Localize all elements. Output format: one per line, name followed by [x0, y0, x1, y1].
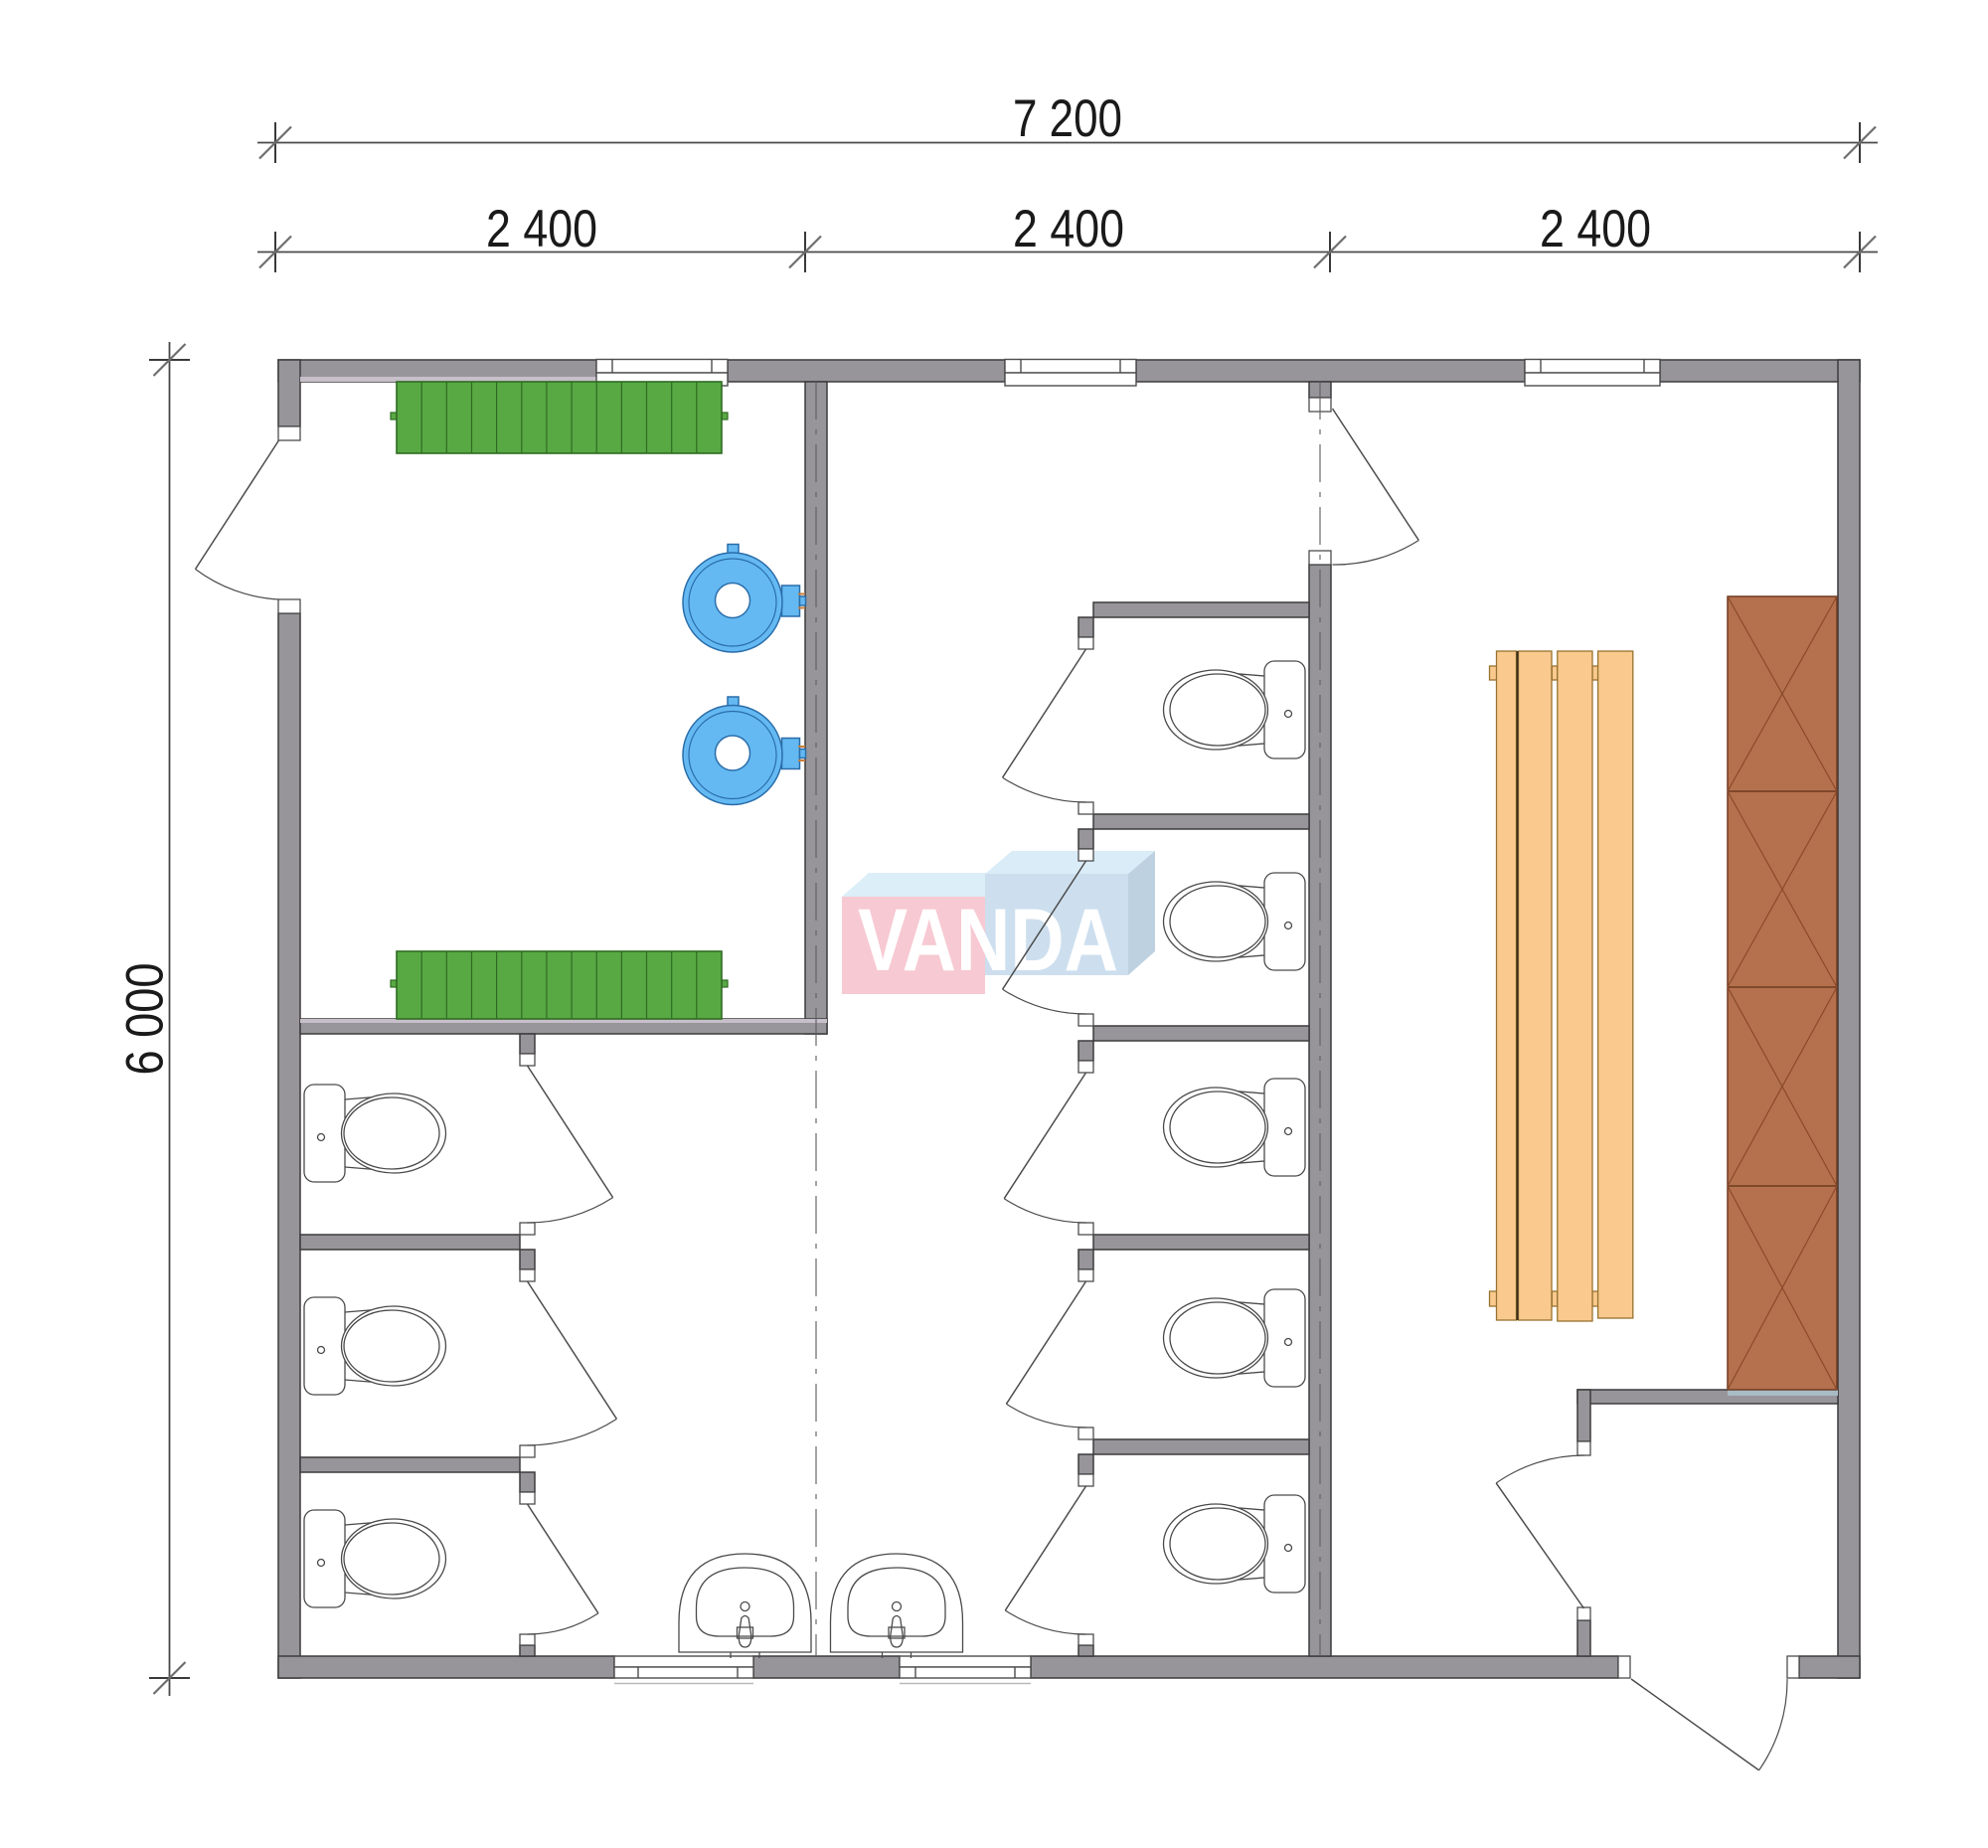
svg-text:2 400: 2 400 — [1013, 200, 1124, 258]
svg-text:2 400: 2 400 — [486, 200, 597, 258]
svg-text:VANDA: VANDA — [858, 890, 1118, 989]
svg-text:7 200: 7 200 — [1013, 89, 1122, 148]
svg-text:6 000: 6 000 — [116, 963, 175, 1076]
svg-text:2 400: 2 400 — [1540, 200, 1651, 258]
